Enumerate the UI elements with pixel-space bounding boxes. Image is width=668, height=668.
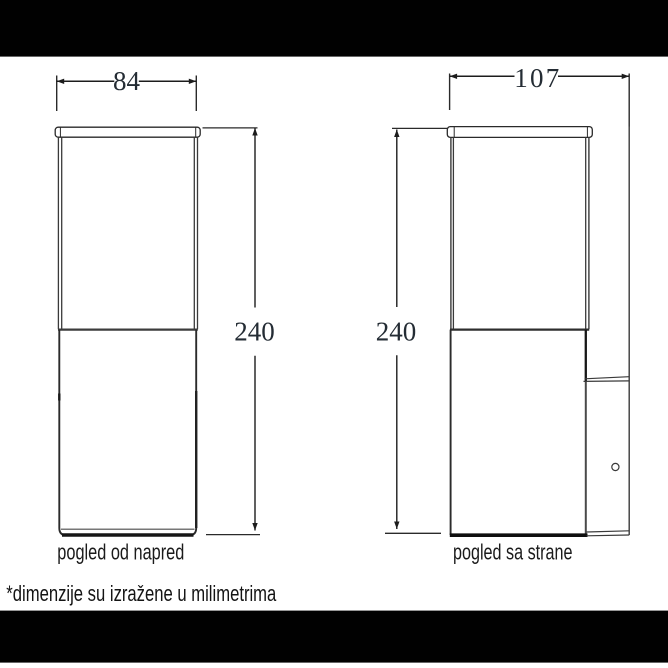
svg-text:107: 107 bbox=[514, 63, 559, 93]
svg-text:pogled od napred: pogled od napred bbox=[57, 540, 184, 565]
svg-text:240: 240 bbox=[376, 317, 417, 347]
svg-text:*dimenzije su izražene u milim: *dimenzije su izražene u milimetrima bbox=[6, 581, 277, 606]
svg-text:240: 240 bbox=[234, 317, 275, 347]
svg-text:pogled sa strane: pogled sa strane bbox=[453, 540, 573, 565]
svg-text:84: 84 bbox=[113, 66, 141, 96]
